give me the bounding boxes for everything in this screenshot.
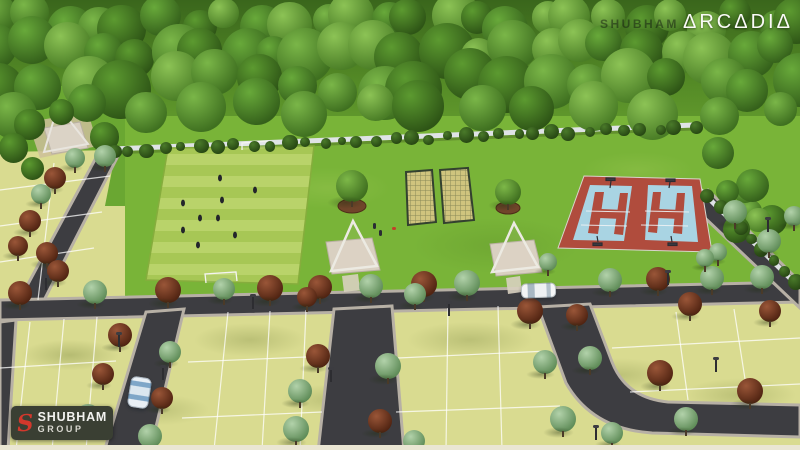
dog-figure — [392, 227, 396, 230]
car-white — [521, 282, 557, 298]
street-tree — [19, 210, 41, 232]
project-logo: ΔRCΔDIΔ — [683, 11, 793, 34]
entrance-lawn — [0, 86, 140, 206]
render-edge-strip — [0, 445, 800, 450]
developer-logo-text: SHUBHAM GROUP — [38, 411, 108, 435]
park-lawn — [125, 116, 800, 296]
developer-name: SHUBHAM — [38, 411, 108, 425]
developer-watermark: SHUBHAM — [600, 17, 679, 31]
site-render: SHUBHAM ΔRCΔDIΔ S SHUBHAM GROUP — [0, 0, 800, 450]
developer-logo: S SHUBHAM GROUP — [11, 406, 113, 440]
developer-suffix: GROUP — [38, 425, 108, 435]
person-figure — [379, 230, 382, 236]
plot-shadows — [0, 280, 800, 450]
street-tree — [8, 236, 28, 256]
person-figure — [373, 223, 376, 229]
street-tree — [36, 242, 58, 264]
s-monogram-icon: S — [16, 411, 34, 435]
street-tree — [47, 260, 69, 282]
